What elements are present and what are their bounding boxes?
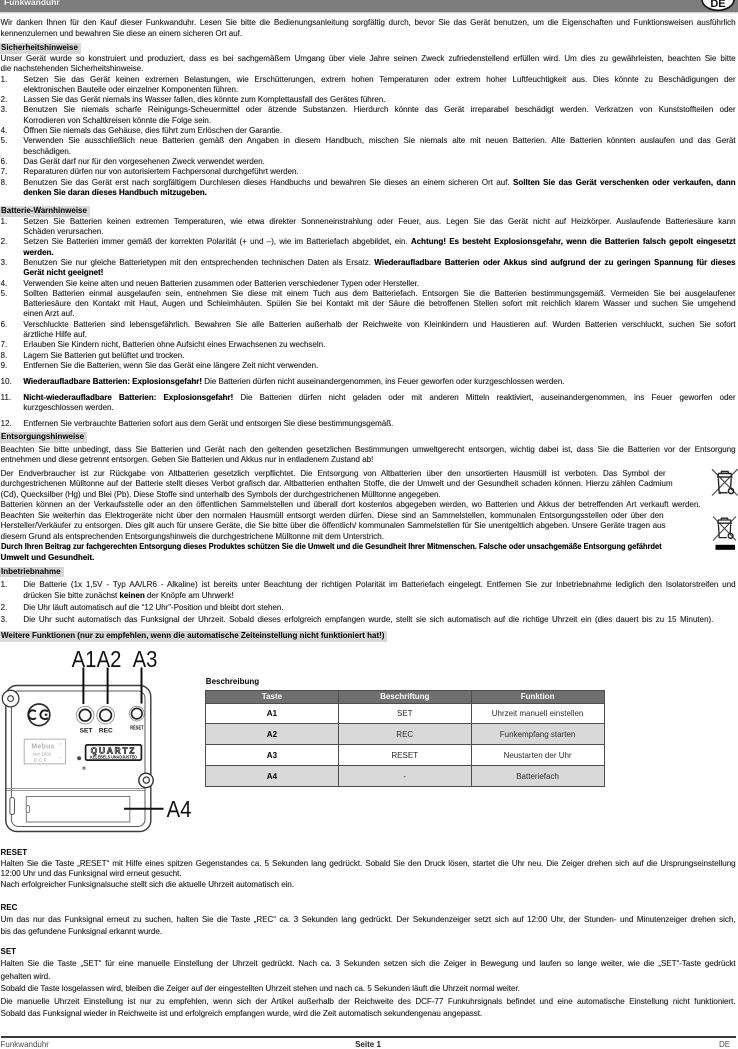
svg-text:♆: ♆ — [58, 756, 61, 761]
svg-text:RESET: RESET — [130, 725, 143, 732]
svg-text:DE: DE — [710, 0, 725, 10]
svg-text:REC: REC — [99, 728, 113, 735]
svg-text:KELEBELS UNADJUSTED: KELEBELS UNADJUSTED — [90, 754, 137, 759]
svg-text:DCF: DCF — [34, 758, 48, 764]
svg-text:Mebus: Mebus — [31, 744, 54, 751]
svg-text:seit 1902: seit 1902 — [33, 751, 52, 756]
svg-text:SET: SET — [80, 728, 93, 735]
